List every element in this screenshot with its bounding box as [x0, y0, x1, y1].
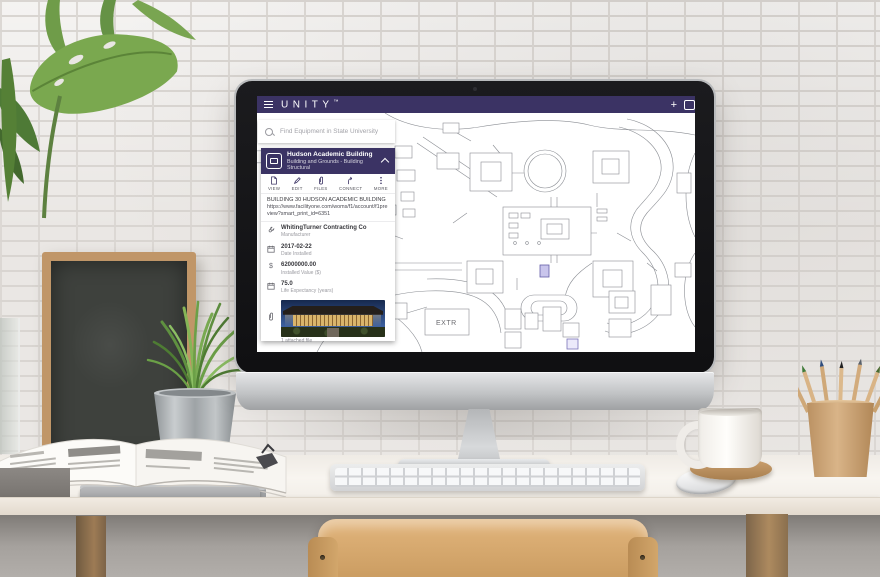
map-frame-icon[interactable]	[684, 100, 695, 110]
calendar-icon	[261, 244, 281, 253]
building-info-panel: Hudson Academic Building Building and Gr…	[261, 148, 395, 341]
more-button[interactable]: MORE	[374, 176, 388, 191]
desk-leg-right	[746, 514, 788, 577]
trademark: ™	[334, 99, 339, 105]
field-value: 2017-02-22	[281, 244, 312, 251]
app-logo: UNITY™	[281, 99, 339, 110]
dollar-icon: $	[261, 262, 281, 270]
search-icon	[265, 128, 273, 136]
wrench-icon	[261, 225, 281, 234]
monstera-plant	[0, 0, 250, 240]
document-icon	[270, 176, 278, 185]
description-text: BUILDING 30 HUDSON ACADEMIC BUILDING	[267, 197, 389, 204]
view-button[interactable]: VIEW	[268, 176, 280, 191]
connect-button[interactable]: CONNECT	[339, 176, 362, 191]
field-label: Life Expectancy (years)	[281, 288, 333, 295]
selected-building-marker[interactable]	[540, 265, 549, 277]
field-value: 62000000.00	[281, 262, 321, 269]
panel-header[interactable]: Hudson Academic Building Building and Gr…	[261, 148, 395, 174]
files-button[interactable]: FILES	[314, 176, 327, 191]
panel-title: Hudson Academic Building	[287, 151, 379, 159]
map-area-label: EXTR	[436, 320, 457, 327]
collapse-chevron-icon[interactable]	[381, 158, 389, 166]
desk-scene: EXTR UNITY™ + Hudson Academic Buil	[0, 0, 880, 577]
add-button[interactable]: +	[671, 99, 677, 111]
attachment-photo[interactable]	[281, 300, 385, 337]
brand-name: UNITY	[281, 99, 334, 110]
field-label: Manufacturer	[281, 232, 367, 239]
chair-post-right	[628, 537, 658, 577]
chair-backrest	[318, 519, 648, 577]
webcam-dot	[473, 87, 477, 91]
chalkboard-smudge	[70, 300, 150, 390]
paperclip-icon	[261, 300, 281, 321]
panel-subtitle: Building and Grounds - Building Structur…	[287, 159, 379, 171]
field-value: WhitingTurner Contracting Co	[281, 225, 367, 232]
secondary-building-marker[interactable]	[567, 339, 578, 349]
edit-button[interactable]: EDIT	[292, 176, 303, 191]
app-header: UNITY™ +	[257, 96, 695, 113]
app-window: EXTR UNITY™ + Hudson Academic Buil	[257, 96, 695, 352]
field-row-manufacturer: WhitingTurner Contracting Co Manufacture…	[261, 222, 395, 241]
pencil-icon	[293, 176, 301, 185]
search-input[interactable]	[278, 127, 392, 136]
building-icon	[266, 153, 282, 169]
field-row-date-installed: 2017-02-22 Date Installed	[261, 241, 395, 260]
more-ellipsis-icon	[377, 176, 385, 185]
attachment-row: 1 attached file	[261, 297, 395, 347]
building-description: BUILDING 30 HUDSON ACADEMIC BUILDING htt…	[261, 194, 395, 222]
calendar-icon	[261, 281, 281, 290]
field-label: Installed Value ($)	[281, 270, 321, 277]
menu-icon[interactable]	[264, 101, 273, 108]
description-link[interactable]: https://www.facilityone.com/woms/f1/acco…	[267, 204, 389, 218]
field-row-installed-value: $ 62000000.00 Installed Value ($)	[261, 260, 395, 279]
pencil-cup	[807, 403, 874, 477]
chair-post-left	[308, 537, 338, 577]
imac-chin	[236, 372, 714, 410]
field-row-life-expectancy: 75.0 Life Expectancy (years)	[261, 279, 395, 298]
coffee-mug	[698, 408, 762, 468]
attachment-caption: 1 attached file	[281, 338, 385, 344]
connect-icon	[347, 176, 355, 185]
paperclip-icon	[317, 176, 325, 185]
field-value: 75.0	[281, 281, 333, 288]
field-label: Date Installed	[281, 251, 312, 258]
desk-leg-left	[76, 516, 106, 577]
keyboard	[330, 464, 645, 491]
panel-toolbar: VIEW EDIT FILES CONNECT MORE	[261, 174, 395, 194]
search-bar[interactable]	[258, 120, 395, 143]
